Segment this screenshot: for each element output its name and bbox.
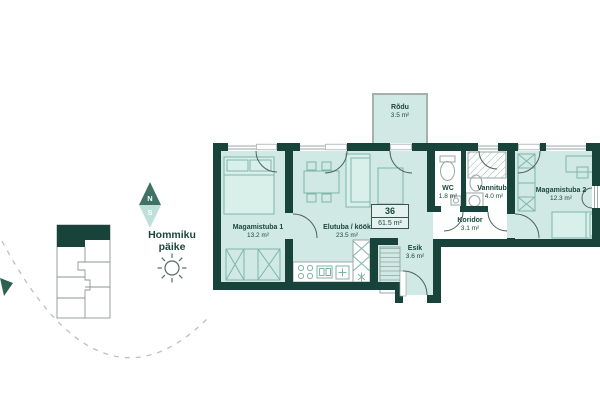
room-area: 13.2 m²	[233, 232, 284, 240]
room-area: 4.0 m²	[477, 193, 510, 201]
unit-total-area: 61.5 m²	[372, 218, 408, 228]
room-name: WC	[439, 185, 457, 193]
sun-label-line2: päike	[148, 241, 196, 253]
bed-1	[224, 157, 274, 214]
sun-label-line1: Hommiku	[148, 229, 196, 241]
unit-number: 36	[372, 205, 408, 218]
sun-icon	[158, 254, 187, 283]
room-label-bedroom-2: Magamistuba 2 12.3 m²	[536, 187, 587, 203]
bathtub	[468, 152, 506, 178]
room-label-wc: WC 1.8 m²	[439, 185, 457, 201]
room-name: Magamistuba 1	[233, 224, 284, 232]
room-label-balcony: Rõdu 3.5 m²	[391, 104, 409, 120]
floor-plan-page: Rõdu 3.5 m² Magamistuba 1 13.2 m² Elutub…	[0, 0, 600, 400]
room-name: Vannituba	[477, 185, 510, 193]
building-minimap	[57, 225, 110, 318]
room-area: 12.3 m²	[536, 195, 587, 203]
room-label-living-room: Elutuba / köök 23.5 m²	[323, 224, 371, 240]
room-name: Koridor	[457, 217, 482, 225]
compass-north-label: N	[147, 194, 152, 203]
room-name: Elutuba / köök	[323, 224, 371, 232]
entrance-door-leaf	[400, 271, 406, 296]
room-name: Magamistuba 2	[536, 187, 587, 195]
room-area: 3.5 m²	[391, 112, 409, 120]
sofa	[346, 154, 370, 207]
room-label-hallway: Esik 3.6 m²	[406, 245, 424, 261]
room-name: Rõdu	[391, 104, 409, 112]
room-area: 3.6 m²	[406, 253, 424, 261]
morning-sun-label: Hommiku päike	[148, 229, 196, 254]
compass-south-label: S	[147, 208, 152, 217]
unit-info-box: 36 61.5 m²	[371, 204, 409, 229]
room-name: Esik	[406, 245, 424, 253]
room-area: 3.1 m²	[457, 225, 482, 233]
room-area: 1.8 m²	[439, 193, 457, 201]
sun-path-arrow-icon	[0, 278, 13, 296]
room-area: 23.5 m²	[323, 232, 371, 240]
room-label-bathroom: Vannituba 4.0 m²	[477, 185, 510, 201]
room-label-corridor: Koridor 3.1 m²	[457, 217, 482, 233]
room-label-bedroom-1: Magamistuba 1 13.2 m²	[233, 224, 284, 240]
compass-icon	[139, 182, 161, 228]
